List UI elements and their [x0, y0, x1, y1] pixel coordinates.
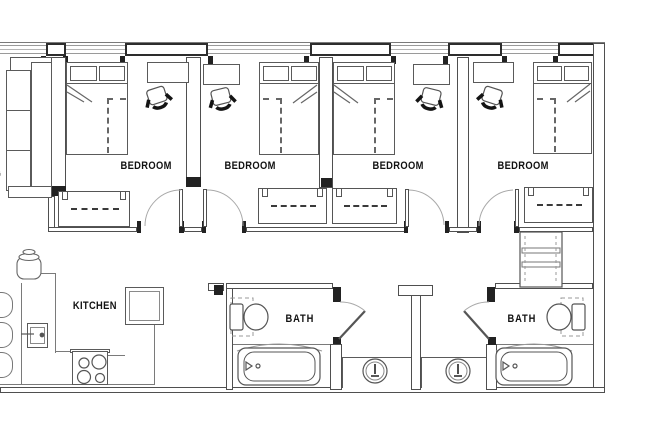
headboard-line	[67, 83, 127, 84]
vanity-counter	[421, 357, 490, 388]
closet-bracket	[387, 188, 393, 197]
closet-bracket	[528, 187, 534, 196]
pillow	[291, 66, 317, 81]
window-jamb	[443, 56, 448, 64]
counter-edge	[21, 283, 22, 384]
bath1-top-wall	[226, 283, 333, 289]
pillow	[337, 66, 364, 81]
bed-bedroom2	[259, 62, 319, 155]
closet-rod-dashes	[537, 204, 582, 206]
closet-bracket	[62, 191, 68, 200]
stove	[72, 351, 108, 385]
counter-edge	[40, 273, 56, 274]
desk-chair	[415, 86, 445, 112]
desk-bedroom1	[147, 62, 189, 83]
bed-dashed-half	[374, 98, 393, 153]
closet-bracket	[336, 188, 342, 197]
desk-bedroom2	[203, 64, 240, 85]
bed-dashed-half	[263, 98, 282, 153]
top-wall-segment	[125, 43, 208, 56]
closet-bracket	[317, 188, 323, 197]
bedroom2-label: BEDROOM	[208, 160, 292, 172]
closet-bracket	[583, 187, 589, 196]
kitchen-sink-basin	[30, 327, 45, 344]
wall-bedroom2-3	[319, 57, 333, 188]
door-jamb	[137, 221, 141, 233]
desk-chair	[206, 86, 236, 112]
couch-cushion	[6, 70, 31, 111]
couch-cushion	[6, 150, 31, 191]
headboard-line	[334, 83, 394, 84]
bed-bedroom4	[533, 62, 592, 154]
door-leaf-bedroom1	[179, 189, 183, 227]
dining-chair	[0, 322, 13, 348]
desk-chair	[142, 84, 173, 111]
dining-chair	[0, 352, 13, 378]
pillow	[263, 66, 289, 81]
bath1-label: BATH	[268, 313, 332, 325]
right-wall	[593, 43, 605, 392]
window	[391, 45, 448, 54]
bottom-wall	[0, 387, 605, 393]
bath1-tub-vanity-wall	[330, 344, 342, 390]
pillow	[537, 66, 562, 81]
pillow	[366, 66, 392, 81]
headboard-line	[534, 83, 591, 84]
counter-edge	[154, 325, 155, 385]
counter-edge	[55, 273, 56, 353]
tub-platform-edge	[233, 344, 330, 345]
window	[0, 45, 46, 54]
door-jamb	[477, 221, 481, 233]
counter-edge	[107, 355, 125, 356]
window-jamb	[208, 56, 213, 64]
living-label-fragment: G	[0, 168, 9, 180]
wall-bedroom3-4	[457, 57, 469, 233]
counter-basin	[17, 250, 41, 280]
kitchen-label: KITCHEN	[53, 300, 137, 312]
window	[502, 45, 558, 54]
desk-bedroom4	[473, 62, 514, 83]
top-wall-outer-line	[0, 42, 605, 43]
door-leaf-bedroom3	[405, 189, 409, 227]
closet-bedroom4	[524, 187, 593, 223]
top-wall-segment	[46, 43, 66, 56]
door-jamb	[487, 287, 495, 302]
bedroom3-label: BEDROOM	[356, 160, 440, 172]
closet-bracket	[120, 191, 126, 200]
closet-bracket	[262, 188, 268, 197]
couch-cushion	[6, 110, 31, 151]
pillow	[70, 66, 97, 81]
corridor-wall	[519, 227, 593, 232]
corridor-wall	[184, 227, 202, 232]
vanity-counter	[342, 357, 412, 388]
desk-bedroom3	[413, 64, 450, 85]
door-jamb	[242, 221, 246, 233]
bath2-label: BATH	[490, 313, 554, 325]
dining-chair	[0, 292, 13, 318]
closet-rod-dashes	[344, 205, 387, 207]
bed-dashed-half	[107, 98, 126, 153]
couch-back	[31, 62, 52, 190]
bed-bedroom1	[66, 62, 128, 155]
bed-bedroom3	[333, 62, 395, 155]
tub-platform-edge	[497, 344, 593, 345]
window	[208, 45, 310, 54]
wall-jamb	[321, 178, 332, 187]
linen-closet	[520, 232, 562, 287]
floor-plan: BEDROOM BEDROOM BEDROOM BEDROOM KITCHEN …	[0, 0, 660, 440]
door-jamb	[333, 287, 341, 302]
desk-chair	[476, 84, 507, 111]
window	[66, 45, 125, 54]
corridor-wall	[449, 227, 477, 232]
wall-living-bedroom1	[50, 57, 66, 196]
closet-rod-dashes	[71, 208, 119, 210]
door-jamb	[445, 221, 449, 233]
closet-bedroom3	[332, 188, 397, 224]
pillow	[564, 66, 589, 81]
wall-jamb	[214, 285, 223, 295]
corridor-wall	[246, 227, 405, 232]
couch-armrest-bottom	[8, 186, 52, 198]
top-wall-segment	[310, 43, 391, 56]
toilet	[230, 298, 268, 336]
bathtub	[237, 344, 322, 385]
bath2-vanity-tub-wall	[486, 344, 497, 390]
bed-dashed-half	[537, 98, 556, 152]
top-wall-segment	[448, 43, 502, 56]
bedroom1-label: BEDROOM	[104, 160, 188, 172]
headboard-line	[260, 83, 318, 84]
door-leaf-bedroom2	[203, 189, 207, 227]
corridor-wall	[48, 227, 137, 232]
bathtub	[496, 344, 572, 385]
door-leaf-bedroom4	[515, 189, 519, 227]
bedroom4-label: BEDROOM	[481, 160, 565, 172]
t-wall-stem	[411, 295, 421, 390]
closet-rod-dashes	[271, 205, 316, 207]
pillow	[99, 66, 125, 81]
wall-jamb	[186, 177, 201, 187]
bath2-top-wall	[495, 283, 593, 289]
bath1-left-wall	[226, 283, 233, 390]
closet-bedroom1	[58, 191, 130, 227]
closet-bedroom2	[258, 188, 327, 224]
door-jamb	[488, 337, 496, 345]
